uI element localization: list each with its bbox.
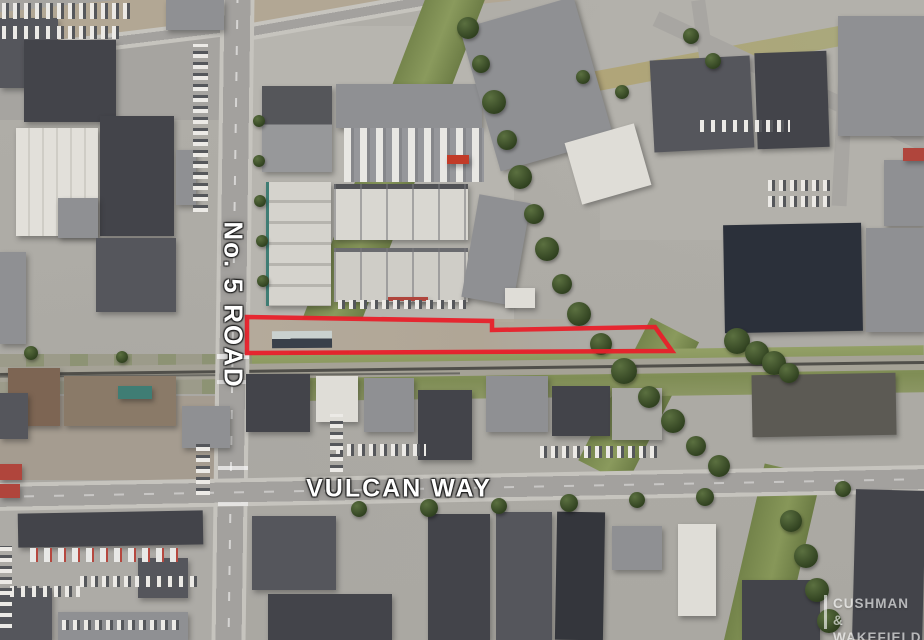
brand-line1: CUSHMAN & [833,595,924,629]
brand-watermark: CUSHMAN & WAKEFIELD [824,595,924,640]
road-label-no5: No. 5 ROAD [218,221,249,388]
property-outline [247,317,672,353]
property-outline-overlay [0,0,924,640]
brand-name: CUSHMAN & WAKEFIELD [833,595,924,640]
brand-bar [824,595,827,629]
brand-line2: WAKEFIELD [833,629,924,640]
road-label-vulcan-way: VULCAN WAY [306,475,492,504]
aerial-map: No. 5 ROAD VULCAN WAY CUSHMAN & WAKEFIEL… [0,0,924,640]
